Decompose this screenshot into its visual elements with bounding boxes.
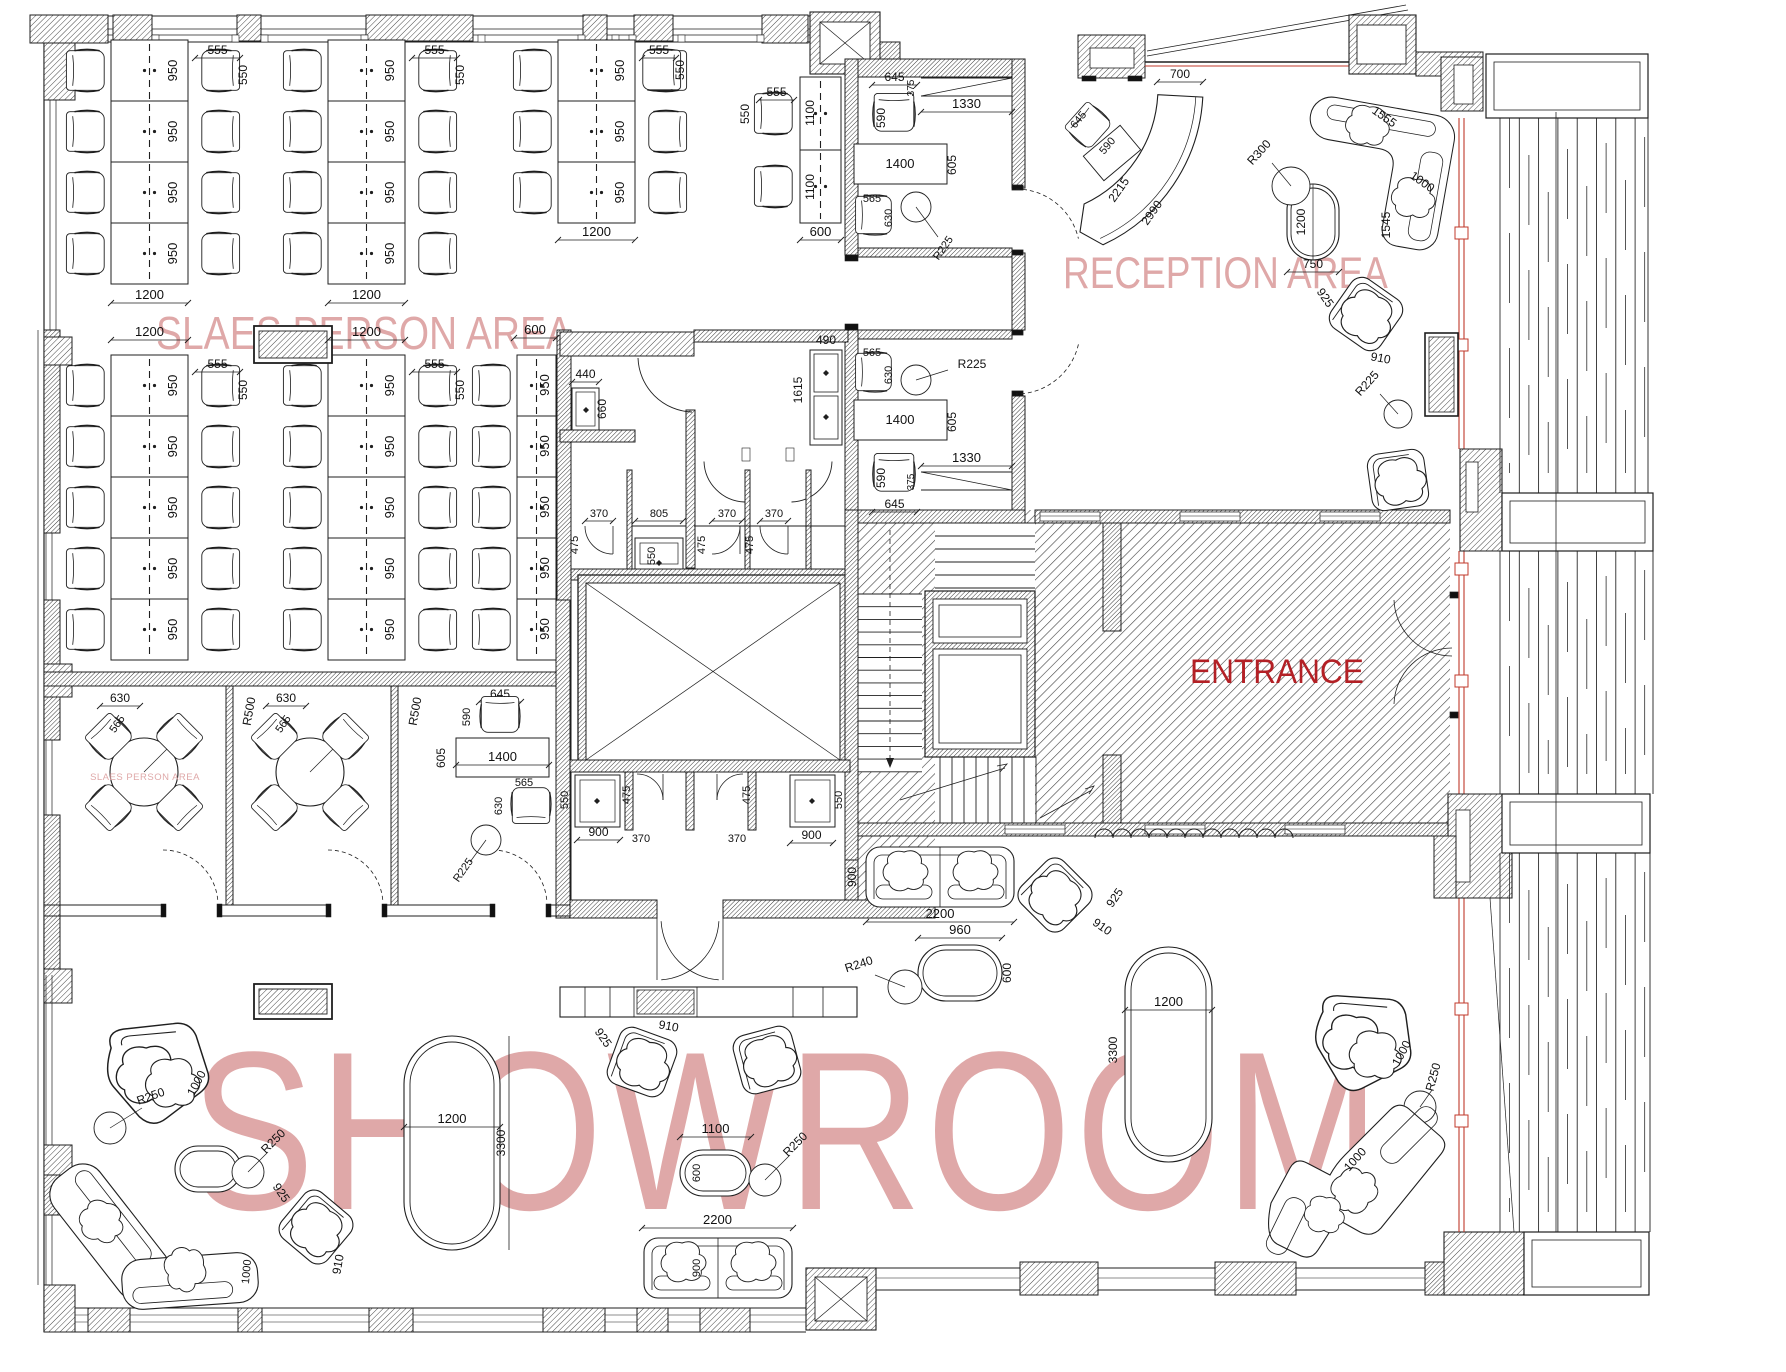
svg-text:605: 605 (434, 748, 448, 768)
svg-text:3300: 3300 (1106, 1036, 1120, 1063)
svg-text:950: 950 (382, 243, 397, 265)
svg-text:700: 700 (1170, 67, 1190, 81)
svg-text:370: 370 (590, 508, 608, 520)
svg-text:550: 550 (453, 65, 467, 85)
svg-text:1400: 1400 (886, 412, 915, 427)
svg-text:630: 630 (493, 797, 505, 815)
svg-text:R225: R225 (958, 357, 987, 371)
svg-text:950: 950 (537, 496, 552, 518)
svg-text:950: 950 (537, 435, 552, 457)
svg-text:950: 950 (382, 121, 397, 143)
svg-text:555: 555 (207, 357, 227, 371)
svg-text:375: 375 (906, 79, 917, 96)
svg-text:1200: 1200 (135, 287, 164, 302)
svg-text:590: 590 (461, 708, 473, 726)
svg-text:1200: 1200 (582, 224, 611, 239)
svg-text:950: 950 (537, 618, 552, 640)
svg-text:1200: 1200 (438, 1111, 467, 1126)
svg-text:2200: 2200 (703, 1212, 732, 1227)
svg-text:950: 950 (382, 497, 397, 519)
svg-text:750: 750 (1303, 257, 1323, 271)
svg-text:645: 645 (884, 70, 904, 84)
svg-text:1200: 1200 (352, 287, 381, 302)
svg-text:950: 950 (382, 182, 397, 204)
svg-text:950: 950 (382, 375, 397, 397)
svg-text:630: 630 (276, 691, 296, 705)
svg-text:1200: 1200 (135, 324, 164, 339)
svg-text:550: 550 (559, 791, 571, 809)
svg-text:950: 950 (612, 121, 627, 143)
svg-text:950: 950 (612, 182, 627, 204)
svg-text:600: 600 (691, 1164, 703, 1182)
svg-text:565: 565 (515, 777, 533, 789)
svg-text:370: 370 (718, 508, 736, 520)
svg-text:375: 375 (906, 473, 917, 490)
svg-text:605: 605 (945, 412, 959, 432)
svg-text:1200: 1200 (1294, 208, 1308, 235)
svg-text:1330: 1330 (952, 96, 981, 111)
svg-text:950: 950 (165, 619, 180, 641)
svg-text:950: 950 (537, 374, 552, 396)
svg-text:490: 490 (816, 333, 836, 347)
svg-text:630: 630 (883, 366, 895, 384)
svg-text:440: 440 (575, 367, 595, 381)
svg-text:960: 960 (949, 922, 971, 937)
svg-text:555: 555 (766, 85, 786, 99)
svg-text:590: 590 (874, 468, 888, 488)
svg-text:550: 550 (236, 380, 250, 400)
svg-text:900: 900 (801, 828, 821, 842)
svg-text:900: 900 (691, 1259, 703, 1277)
svg-text:950: 950 (165, 497, 180, 519)
svg-text:1200: 1200 (352, 324, 381, 339)
svg-text:ENTRANCE: ENTRANCE (1190, 653, 1364, 692)
svg-text:950: 950 (165, 436, 180, 458)
svg-text:630: 630 (883, 209, 895, 227)
svg-text:605: 605 (945, 155, 959, 175)
svg-text:370: 370 (632, 833, 650, 845)
svg-text:475: 475 (569, 536, 581, 554)
svg-text:950: 950 (382, 60, 397, 82)
svg-text:550: 550 (236, 65, 250, 85)
svg-text:SLAES PERSON AREA: SLAES PERSON AREA (90, 772, 200, 783)
svg-text:475: 475 (744, 536, 756, 554)
svg-text:950: 950 (165, 121, 180, 143)
svg-text:645: 645 (884, 497, 904, 511)
svg-text:950: 950 (382, 436, 397, 458)
svg-text:590: 590 (874, 108, 888, 128)
svg-text:555: 555 (207, 43, 227, 57)
svg-text:600: 600 (1000, 963, 1014, 983)
svg-text:600: 600 (810, 224, 832, 239)
svg-text:950: 950 (165, 558, 180, 580)
svg-text:2200: 2200 (926, 906, 955, 921)
svg-text:600: 600 (524, 322, 546, 337)
svg-text:1400: 1400 (488, 749, 517, 764)
svg-text:950: 950 (165, 182, 180, 204)
svg-text:370: 370 (728, 833, 746, 845)
svg-text:950: 950 (612, 60, 627, 82)
svg-text:900: 900 (845, 867, 859, 887)
svg-text:660: 660 (595, 399, 609, 419)
svg-text:950: 950 (382, 558, 397, 580)
svg-text:555: 555 (424, 357, 444, 371)
svg-text:1000: 1000 (240, 1259, 254, 1284)
svg-text:3300: 3300 (494, 1129, 508, 1156)
svg-text:550: 550 (833, 791, 845, 809)
svg-text:630: 630 (110, 691, 130, 705)
svg-text:1330: 1330 (952, 450, 981, 465)
svg-text:555: 555 (649, 43, 669, 57)
svg-text:950: 950 (537, 557, 552, 579)
svg-text:475: 475 (621, 786, 633, 804)
svg-text:475: 475 (696, 536, 708, 554)
svg-text:1100: 1100 (803, 174, 817, 200)
svg-text:565: 565 (863, 347, 881, 359)
svg-text:550: 550 (453, 380, 467, 400)
svg-text:370: 370 (765, 508, 783, 520)
svg-text:550: 550 (738, 104, 752, 124)
svg-text:900: 900 (588, 825, 608, 839)
svg-text:1100: 1100 (803, 100, 817, 126)
svg-text:550: 550 (646, 547, 658, 565)
svg-text:565: 565 (863, 193, 881, 205)
svg-text:555: 555 (424, 43, 444, 57)
svg-text:1200: 1200 (1154, 994, 1183, 1009)
svg-text:950: 950 (165, 375, 180, 397)
svg-text:805: 805 (650, 508, 668, 520)
svg-text:475: 475 (741, 786, 753, 804)
svg-text:1615: 1615 (791, 376, 805, 403)
svg-text:550: 550 (673, 60, 687, 80)
svg-text:1545: 1545 (1379, 211, 1393, 238)
svg-text:1100: 1100 (702, 1121, 730, 1136)
svg-text:RECEPTION AREA: RECEPTION AREA (1063, 248, 1388, 298)
svg-text:1400: 1400 (886, 156, 915, 171)
svg-text:950: 950 (382, 619, 397, 641)
svg-text:950: 950 (165, 60, 180, 82)
svg-text:950: 950 (165, 243, 180, 265)
